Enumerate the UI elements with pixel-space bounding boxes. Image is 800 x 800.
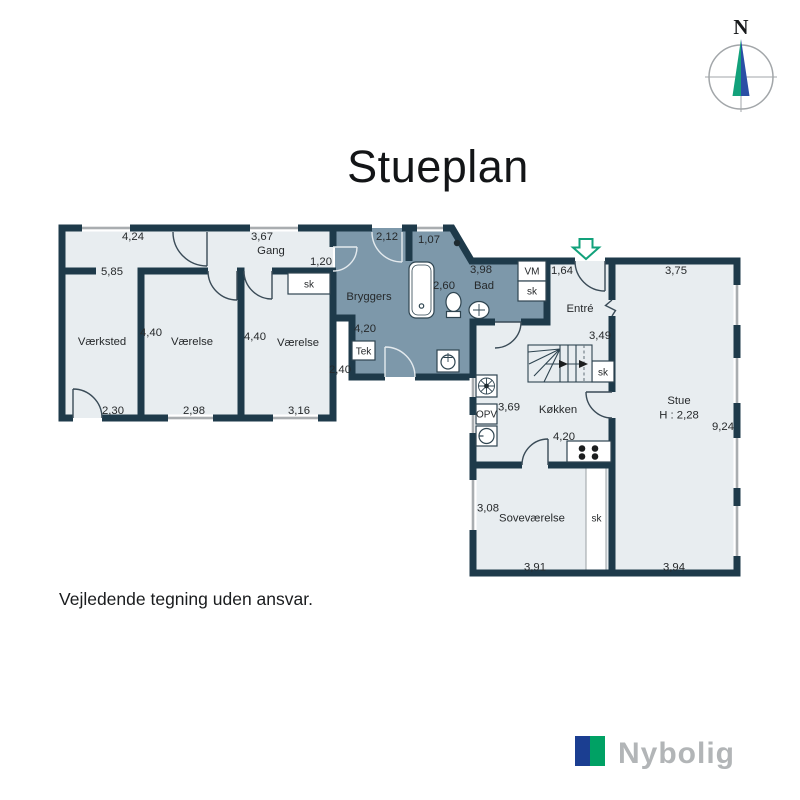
meas-entre-top: 1,64	[551, 265, 573, 277]
meas-sovevaerelse-side: 3,08	[477, 503, 499, 515]
meas-bryggers-width: 4,20	[354, 323, 376, 335]
nybolig-logo-text: Nybolig	[618, 739, 735, 769]
room-label-gang: Gang	[257, 245, 285, 257]
meas-vaerksted-bottom: 2,30	[102, 405, 124, 417]
fan-icon	[479, 378, 495, 394]
sink-icon	[469, 302, 489, 319]
meas-sovevaerelse-bottom: 3,91	[524, 562, 546, 574]
room-label-vaerelse2: Værelse	[277, 337, 319, 349]
meas-vaerksted-top: 4,24	[122, 231, 144, 243]
floorplan-canvas: N 4,24 3,67 Gang 5,85 1,20 sk Værksted 4…	[0, 0, 800, 800]
toilet-icon	[446, 293, 461, 318]
meas-entre-side: 3,49	[589, 330, 611, 342]
entrance-arrow-icon	[573, 239, 599, 259]
meas-koekken-side: 3,69	[498, 402, 520, 414]
room-label-entre: Entré	[566, 303, 593, 315]
label-sovevaerelse-closet: sk	[592, 514, 603, 525]
nybolig-logo: Nybolig	[575, 736, 735, 769]
room-label-stue: Stue	[667, 395, 690, 407]
compass-needle-east	[741, 39, 750, 96]
meas-bryggers-door-top: 2,12	[376, 231, 398, 243]
label-bad-closet: sk	[527, 287, 538, 298]
floorplan-page: Stueplan	[0, 0, 800, 800]
cooktop-icon	[567, 441, 611, 462]
drain-icon	[437, 350, 459, 372]
meas-bad-window-top: 1,07	[418, 234, 440, 246]
meas-vaerelse1-bottom: 2,98	[183, 405, 205, 417]
room-fills	[62, 228, 737, 573]
meas-stue-top: 3,75	[665, 265, 687, 277]
disclaimer-text: Vejledende tegning uden ansvar.	[59, 589, 313, 610]
meas-vaerelse2-bottom: 3,16	[288, 405, 310, 417]
label-tek: Tek	[356, 347, 373, 358]
meas-gang-top: 3,67	[251, 231, 273, 243]
meas-gang-door: 1,20	[310, 256, 332, 268]
meas-koekken-bottom: 4,20	[553, 431, 575, 443]
bathtub-icon	[409, 262, 434, 318]
room-label-koekken: Køkken	[539, 404, 577, 416]
meas-vaerelse1-side: 4,40	[140, 327, 162, 339]
room-label-bryggers: Bryggers	[346, 291, 392, 303]
compass-icon: N	[705, 15, 777, 112]
meas-bad-mid: 2,60	[433, 280, 455, 292]
meas-stue-side: 9,24	[712, 421, 734, 433]
room-label-bad: Bad	[474, 280, 494, 292]
logo-blue-half	[575, 736, 590, 766]
compass-north-label: N	[733, 15, 748, 39]
label-opv: OPV	[476, 410, 497, 421]
label-stair-closet: sk	[598, 368, 609, 379]
room-label-vaerelse1: Værelse	[171, 336, 213, 348]
meas-stue-bottom: 3,94	[663, 562, 685, 574]
nybolig-logo-icon	[575, 736, 605, 766]
meas-vaerelse2-side: 4,40	[244, 331, 266, 343]
meas-stue-ceiling: H : 2,28	[659, 410, 699, 422]
compass-needle-west	[733, 39, 742, 96]
left-wing-floor	[62, 228, 333, 418]
meas-vaerksted-mid: 5,85	[101, 266, 123, 278]
logo-green-half	[590, 736, 605, 766]
label-gang-closet: sk	[304, 280, 315, 291]
meas-bad-width: 3,98	[470, 264, 492, 276]
shower-icon	[454, 240, 460, 246]
label-vm: VM	[525, 267, 540, 278]
room-label-sovevaerelse: Soveværelse	[499, 513, 565, 525]
meas-bryggers-side: 2,40	[329, 364, 351, 376]
room-label-vaerksted: Værksted	[78, 336, 126, 348]
stairs	[528, 345, 592, 382]
